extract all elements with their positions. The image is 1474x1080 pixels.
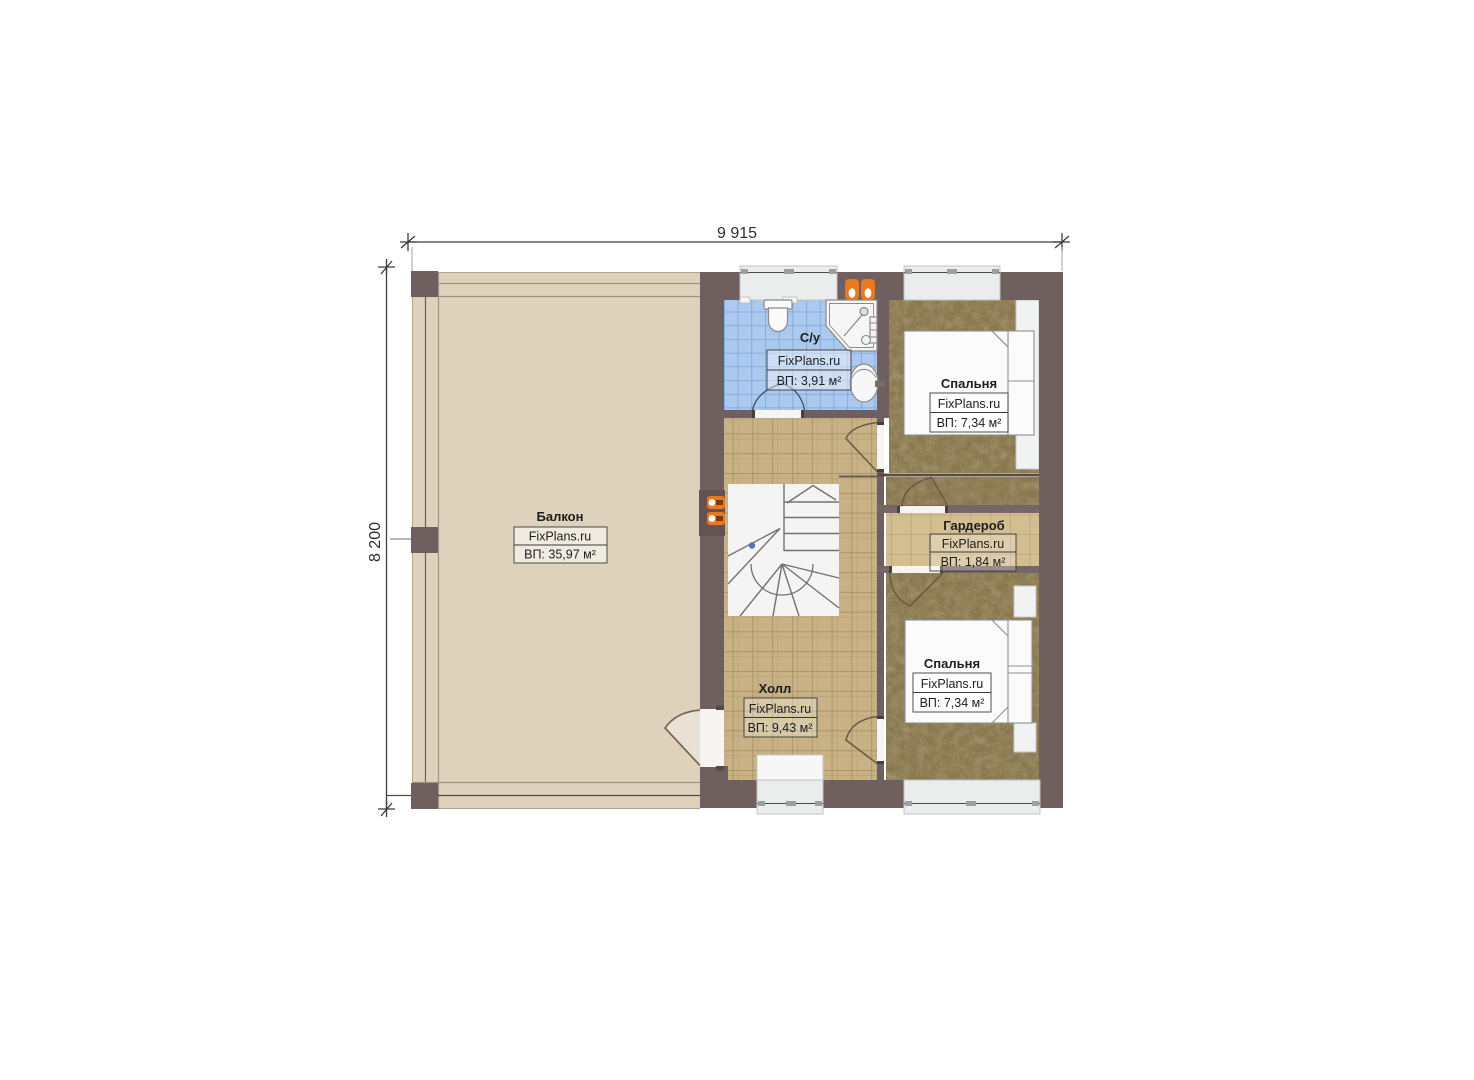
svg-text:ВП: 7,34 м²: ВП: 7,34 м² — [937, 416, 1002, 430]
svg-text:FixPlans.ru: FixPlans.ru — [921, 677, 984, 691]
svg-text:9 915: 9 915 — [717, 225, 757, 242]
svg-text:ВП: 1,84 м²: ВП: 1,84 м² — [941, 555, 1006, 569]
svg-text:Холл: Холл — [759, 681, 792, 696]
svg-text:ВП: 35,97 м²: ВП: 35,97 м² — [524, 548, 596, 562]
svg-text:Спальня: Спальня — [941, 376, 997, 391]
svg-text:FixPlans.ru: FixPlans.ru — [749, 702, 812, 716]
svg-text:Балкон: Балкон — [537, 509, 584, 524]
svg-text:С/у: С/у — [800, 330, 821, 345]
svg-text:ВП: 7,34 м²: ВП: 7,34 м² — [920, 696, 985, 710]
svg-text:ВП: 9,43 м²: ВП: 9,43 м² — [748, 721, 813, 735]
svg-text:FixPlans.ru: FixPlans.ru — [938, 397, 1001, 411]
svg-text:FixPlans.ru: FixPlans.ru — [529, 530, 592, 544]
svg-text:FixPlans.ru: FixPlans.ru — [942, 537, 1005, 551]
svg-text:Спальня: Спальня — [924, 656, 980, 671]
svg-text:ВП: 3,91 м²: ВП: 3,91 м² — [777, 374, 842, 388]
svg-text:FixPlans.ru: FixPlans.ru — [778, 354, 841, 368]
svg-text:8 200: 8 200 — [367, 522, 384, 562]
svg-text:Гардероб: Гардероб — [943, 518, 1004, 533]
